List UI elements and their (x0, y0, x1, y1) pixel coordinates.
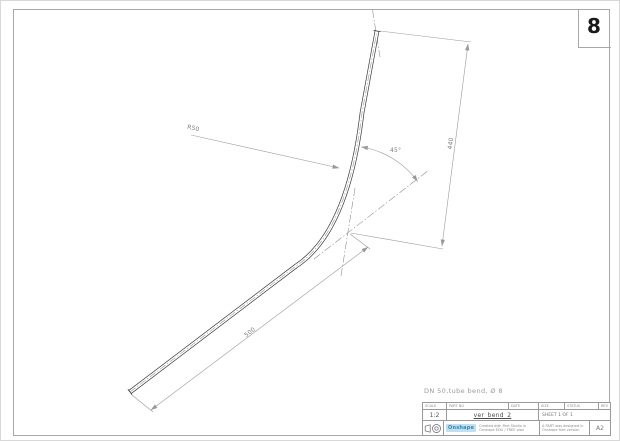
first-angle-projection-icon (424, 423, 442, 434)
dim-line-500 (151, 247, 368, 410)
copyright-line2: Onshape free version (542, 428, 589, 433)
tagline-line2: Onshape EDU / FREE plan (479, 428, 526, 433)
title-block: SCALE PART NO DATE SIZE STATUS REV 1:2 v… (422, 402, 611, 436)
drawing-canvas (1, 1, 620, 441)
tangent-extension-line (314, 170, 429, 259)
scale-value: 1:2 (423, 410, 447, 420)
title-block-value-row: 1:2 ver_bend_2 SHEET 1 OF 1 (423, 410, 610, 421)
tube-outline (128, 30, 381, 394)
ext-line-top (380, 31, 471, 42)
titleblock-note: DN 50,tube bend, Ø 8 (424, 387, 604, 395)
ext-line-bottom-right (350, 234, 370, 249)
radius-dimension (191, 135, 339, 168)
header-scale: SCALE (423, 403, 447, 409)
radius-leader-line (191, 135, 339, 168)
drawing-sheet: 8 (0, 0, 620, 441)
tube-outer (130, 31, 377, 392)
length-440-label: 440 (447, 137, 455, 150)
title-block-header-row: SCALE PART NO DATE SIZE STATUS REV (423, 403, 610, 410)
header-size: SIZE (539, 403, 565, 409)
logo-cell: Onshape Created with Part Studio in Onsh… (444, 421, 540, 435)
ext-line-bottom-left (132, 395, 153, 412)
header-part-no: PART NO (447, 403, 509, 409)
angle-label: 45° (390, 147, 401, 154)
projection-symbol-cell (423, 421, 444, 435)
bottom-dimension (132, 234, 370, 412)
paper-size: A2 (590, 421, 610, 435)
title-block-footer-row: Onshape Created with Part Studio in Onsh… (423, 421, 610, 435)
part-name-link: ver_bend_2 (474, 412, 512, 419)
sheet-info: SHEET 1 OF 1 (539, 410, 610, 420)
onshape-logo: Onshape (446, 424, 476, 432)
copyright-cell: A PART was designed in Onshape free vers… (540, 421, 590, 435)
header-rev: REV (599, 403, 610, 409)
dim-line-440 (442, 44, 468, 246)
header-status: STATUS (565, 403, 599, 409)
header-date: DATE (509, 403, 539, 409)
ext-line-mid (351, 233, 443, 249)
tagline: Created with Part Studio in Onshape EDU … (479, 424, 526, 433)
part-name-cell: ver_bend_2 (447, 410, 539, 420)
